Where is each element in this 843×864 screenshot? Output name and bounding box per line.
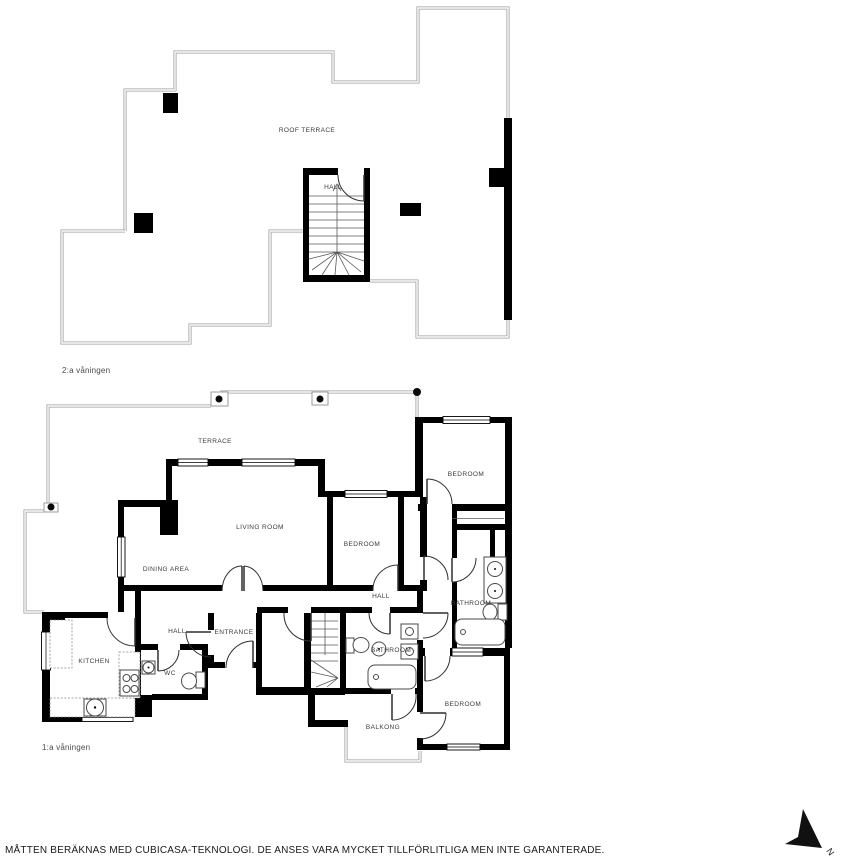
room-label-bathroom-middle: BATHROOM	[371, 647, 411, 654]
compass-n-label: N	[824, 846, 836, 857]
room-label-kitchen: KITCHEN	[78, 658, 109, 665]
floor1-label: 1:a våningen	[42, 743, 90, 752]
terrace-railing	[25, 388, 421, 612]
room-label-balkong: BALKONG	[366, 724, 400, 731]
bedroom-top-right-door	[427, 479, 452, 504]
room-label-bedroom-bottom-right: BEDROOM	[445, 701, 481, 708]
corridor-door	[424, 556, 448, 580]
hall-lobby-door	[423, 613, 448, 638]
room-label-dining-area: DINING AREA	[143, 566, 190, 573]
living-room-double-door	[222, 566, 263, 591]
bathroom-right-door	[452, 558, 476, 582]
entrance-front-door	[226, 641, 253, 668]
roof-terrace-railing	[62, 8, 508, 343]
north-arrow: N	[785, 809, 836, 857]
north-arrow-icon	[785, 809, 822, 848]
room-label-living-room: LIVING ROOM	[236, 524, 284, 531]
room-label-roof-terrace: ROOF TERRACE	[279, 127, 336, 134]
room-label-hall-floor2: HALL	[324, 184, 342, 191]
room-label-hall-middle: HALL	[372, 593, 390, 600]
balkong-door	[392, 694, 416, 720]
bathroom-middle-door	[369, 613, 390, 634]
room-label-wc: WC	[164, 670, 176, 677]
room-label-terrace: TERRACE	[198, 438, 232, 445]
floor2-label: 2:a våningen	[62, 366, 110, 375]
floorplan-page: ROOF TERRACE HALL 2:a våningen	[0, 0, 843, 864]
kitchen-fixtures	[50, 620, 140, 717]
floor2-plan: ROOF TERRACE HALL 2:a våningen	[62, 8, 512, 375]
bedroom-middle-door	[373, 565, 398, 591]
room-label-bathroom-right: BATHROOM	[451, 600, 491, 607]
room-label-hall-left: HALL	[168, 628, 186, 635]
bedroom-bottom-left-door	[420, 713, 446, 739]
bathroom-middle-fixtures	[346, 624, 418, 689]
balcony-railing	[346, 727, 420, 761]
room-label-bedroom-middle: BEDROOM	[344, 541, 380, 548]
disclaimer-text: MÅTTEN BERÄKNAS MED CUBICASA-TEKNOLOGI. …	[5, 843, 605, 856]
wc-door	[158, 650, 179, 671]
room-label-entrance: ENTRANCE	[215, 629, 254, 636]
floor2-stairs	[309, 184, 364, 275]
bedroom-bottom-top-door	[425, 656, 450, 681]
floor1-stairs	[311, 613, 338, 687]
floor1-plan: TERRACE LIVING ROOM DINING AREA BEDROOM …	[25, 388, 512, 761]
room-label-bedroom-top-right: BEDROOM	[448, 471, 484, 478]
kitchen-door	[107, 618, 135, 646]
